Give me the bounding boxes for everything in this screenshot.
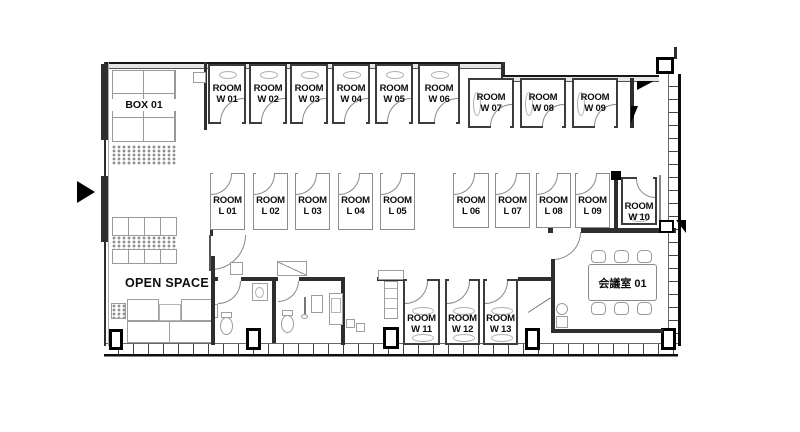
column (661, 328, 676, 350)
decoration: L 03 (296, 207, 329, 218)
column (109, 329, 123, 350)
decoration: L 09 (576, 207, 609, 218)
cabinet (193, 72, 206, 83)
wall-niche-top (518, 277, 551, 281)
sofa-back-cushion (127, 299, 159, 321)
door-arc (405, 281, 428, 304)
room-label: ROOML 01 (211, 196, 244, 218)
room-w-01: ROOMW 01 (208, 64, 246, 124)
sofa-seat (127, 321, 212, 343)
cabinet (356, 323, 365, 332)
room-l-01: ROOML 01 (210, 173, 245, 230)
mop-base (301, 314, 308, 319)
shelf-unit (112, 249, 177, 264)
door-leaf-diagonal (528, 297, 551, 313)
sink-basin (255, 287, 264, 298)
room-w-03: ROOMW 03 (290, 64, 328, 124)
room-w-10: ROOMW 10 (621, 177, 657, 225)
decoration: W 12 (447, 325, 478, 336)
plant-pot (112, 304, 125, 318)
door-arc (339, 174, 360, 195)
toilet-bowl (220, 317, 233, 335)
room-w-12: ROOMW 12 (445, 279, 480, 345)
box-label: BOX 01 (112, 99, 176, 111)
decoration: L 08 (537, 207, 570, 218)
room-label: ROOMW 06 (420, 84, 458, 106)
door-arc (485, 281, 508, 304)
door-arc (211, 174, 232, 195)
light-fixture-icon (431, 71, 449, 79)
room-w-05: ROOMW 05 (375, 64, 413, 124)
water-server (556, 303, 568, 315)
room-w-06: ROOMW 06 (418, 64, 460, 124)
room-w-13: ROOMW 13 (483, 279, 518, 345)
column (246, 328, 261, 350)
decoration: L 06 (454, 207, 488, 218)
decoration: W 11 (405, 325, 438, 336)
meeting-table: 会議室 01 (588, 264, 657, 301)
toilet-bowl (281, 315, 294, 333)
decoration: W 08 (522, 104, 564, 115)
chair (637, 302, 652, 315)
room-label: ROOML 05 (381, 196, 414, 218)
cabinet (556, 316, 568, 328)
decoration: W 07 (470, 104, 512, 115)
room-label: ROOMW 12 (447, 314, 478, 336)
decoration: L 02 (254, 207, 287, 218)
wall-toilet-top (299, 277, 345, 281)
decoration: W 02 (251, 95, 285, 106)
wall-meeting-left (551, 259, 555, 333)
sofa-cushion (159, 304, 181, 321)
sofa-back-cushion (181, 299, 212, 321)
chair (637, 250, 652, 263)
room-label: ROOMW 01 (210, 84, 244, 106)
wall-toilet-left (211, 256, 215, 345)
room-l-05: ROOML 05 (380, 173, 415, 230)
wall-left-black-2 (101, 176, 108, 242)
door-arc (296, 174, 317, 195)
room-label: ROOMW 04 (334, 84, 368, 106)
light-fixture-icon (343, 71, 361, 79)
decoration: W 13 (485, 325, 516, 336)
room-label: ROOMW 05 (377, 84, 411, 106)
room-label: ROOMW 07 (470, 93, 512, 115)
cabinet (346, 319, 355, 328)
open-space-label: OPEN SPACE (117, 276, 217, 290)
wall-meeting-bottom (551, 329, 663, 333)
wall-left-face (108, 62, 109, 346)
room-label: ROOML 07 (496, 196, 529, 218)
room-label: ROOML 03 (296, 196, 329, 218)
chair (591, 302, 606, 315)
washer-drum (331, 298, 341, 313)
chair (591, 250, 606, 263)
door-arc (496, 174, 517, 195)
room-label: ROOMW 09 (574, 93, 616, 115)
mirror-counter (277, 261, 307, 276)
mop-handle (304, 297, 306, 315)
room-label: ROOMW 13 (485, 314, 516, 336)
room-label: ROOMW 11 (405, 314, 438, 336)
wall-stub-topright (674, 47, 677, 59)
wall-toilet-partition (272, 277, 276, 343)
door-arc (218, 281, 241, 304)
light-fixture-icon (386, 71, 404, 79)
room-l-02: ROOML 02 (253, 173, 288, 230)
decoration: W 05 (377, 95, 411, 106)
chair (614, 250, 629, 263)
door-arc (537, 174, 558, 195)
door-arc (254, 174, 275, 195)
room-label: ROOML 09 (576, 196, 609, 218)
light-fixture-icon (219, 71, 237, 79)
column (383, 327, 399, 349)
wall-right (668, 74, 681, 346)
room-l-04: ROOML 04 (338, 173, 373, 230)
decoration: L 04 (339, 207, 372, 218)
room-w-11: ROOMW 11 (403, 279, 440, 345)
decoration: W 01 (210, 95, 244, 106)
shear-wall (631, 106, 638, 123)
door-arc (576, 174, 597, 195)
room-w-07: ROOMW 07 (468, 78, 514, 128)
room-w-04: ROOMW 04 (332, 64, 370, 124)
room-label: ROOMW 10 (623, 202, 655, 224)
door-arc (454, 174, 475, 195)
equipment-box (659, 220, 674, 233)
door-arc (636, 179, 655, 198)
cabinet (230, 262, 243, 275)
room-label: ROOML 08 (537, 196, 570, 218)
decoration: W 09 (574, 104, 616, 115)
chair (614, 302, 629, 315)
light-fixture-icon (260, 71, 278, 79)
room-l-03: ROOML 03 (295, 173, 330, 230)
room-label: ROOML 06 (454, 196, 488, 218)
wall-l-w10-divider (614, 173, 618, 230)
door-arc (553, 232, 581, 260)
plants (112, 236, 177, 249)
cabinet (311, 295, 323, 313)
room-l-09: ROOML 09 (575, 173, 610, 228)
decoration: L 01 (211, 207, 244, 218)
room-w-09: ROOMW 09 (572, 78, 618, 128)
shelf-unit (112, 217, 177, 236)
equipment-flag (676, 220, 686, 233)
entrance-arrow-icon (77, 181, 95, 203)
room-l-06: ROOML 06 (453, 173, 489, 228)
decoration: W 06 (420, 95, 458, 106)
decoration: L 05 (381, 207, 414, 218)
room-w-08: ROOMW 08 (520, 78, 566, 128)
plants (112, 145, 176, 165)
shelf-top (378, 270, 404, 280)
room-label: ROOMW 08 (522, 93, 564, 115)
shear-wall (637, 81, 654, 90)
decoration: W 03 (292, 95, 326, 106)
wall-left-black-1 (101, 64, 108, 140)
room-l-08: ROOML 08 (536, 173, 571, 228)
decoration: L 07 (496, 207, 529, 218)
room-label: ROOMW 02 (251, 84, 285, 106)
room-label: ROOML 02 (254, 196, 287, 218)
light-fixture-icon (301, 71, 319, 79)
room-label: ROOML 04 (339, 196, 372, 218)
decoration: W 04 (334, 95, 368, 106)
door-arc (447, 281, 470, 304)
floor-plan: BOX 01 OPEN SPACE (0, 0, 800, 432)
meeting-room-label: 会議室 01 (598, 275, 646, 291)
wall-cap (611, 171, 621, 180)
column (525, 328, 540, 350)
tall-cabinet (384, 281, 398, 319)
room-label: ROOMW 03 (292, 84, 326, 106)
room-w-02: ROOMW 02 (249, 64, 287, 124)
decoration: W 10 (623, 213, 655, 224)
column-top-right (656, 57, 674, 74)
wall-bottom-face (104, 356, 678, 357)
door-arc (381, 174, 402, 195)
room-l-07: ROOML 07 (495, 173, 530, 228)
door-arc (278, 281, 299, 302)
